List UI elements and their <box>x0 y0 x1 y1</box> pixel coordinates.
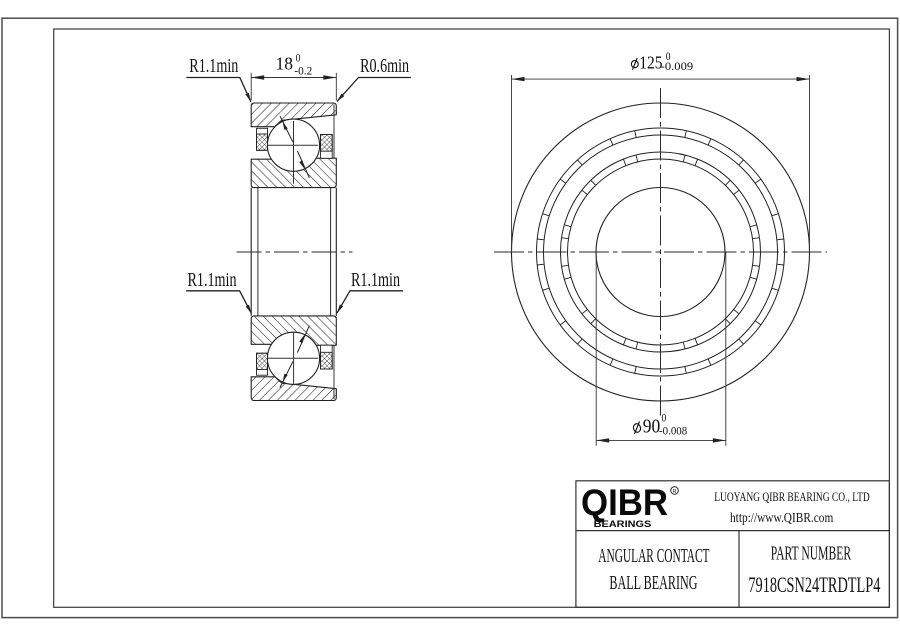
svg-text:R1.1min: R1.1min <box>188 270 237 291</box>
svg-text:90: 90 <box>643 416 661 438</box>
svg-text:BEARINGS: BEARINGS <box>594 519 652 529</box>
svg-text:18: 18 <box>276 53 294 73</box>
svg-text:-0.2: -0.2 <box>294 63 312 77</box>
svg-text:R0.6min: R0.6min <box>360 56 409 77</box>
svg-text:-0.008: -0.008 <box>659 424 687 438</box>
svg-text:ANGULAR CONTACT: ANGULAR CONTACT <box>598 545 709 567</box>
svg-text:R: R <box>673 489 677 495</box>
svg-text:125: 125 <box>639 53 662 73</box>
svg-text:7918CSN24TRDTLP4: 7918CSN24TRDTLP4 <box>748 572 880 597</box>
svg-text:LUOYANG QIBR BEARING CO., LTD: LUOYANG QIBR BEARING CO., LTD <box>714 489 870 504</box>
svg-text:BALL BEARING: BALL BEARING <box>609 572 697 594</box>
svg-text:http://www.QIBR.com: http://www.QIBR.com <box>730 510 834 525</box>
svg-text:R1.1min: R1.1min <box>189 56 238 77</box>
svg-text:0: 0 <box>662 411 667 425</box>
svg-text:0: 0 <box>296 51 301 65</box>
svg-text:QIBR: QIBR <box>581 481 668 523</box>
svg-text:-0.009: -0.009 <box>661 61 694 73</box>
svg-text:R1.1min: R1.1min <box>351 270 400 291</box>
svg-text:PART NUMBER: PART NUMBER <box>771 543 852 565</box>
